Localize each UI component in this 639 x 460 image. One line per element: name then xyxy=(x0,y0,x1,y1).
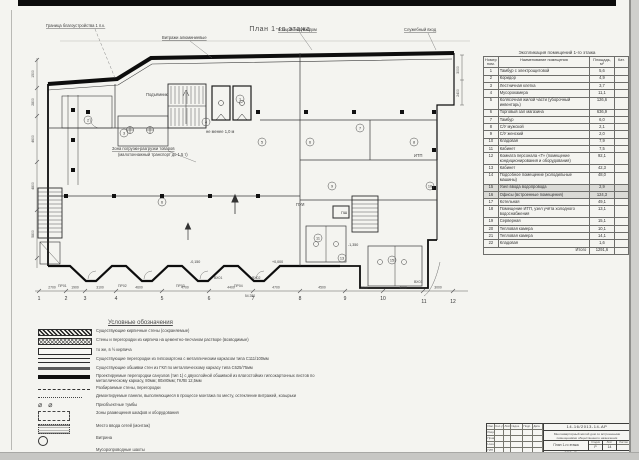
room-name-cell: Кабинет xyxy=(498,165,590,172)
stage-cell: Стадия Р xyxy=(588,441,602,450)
room-name-cell: Колясочная жилой части (уборочный инвент… xyxy=(498,97,590,109)
room-number-cell: 17 xyxy=(484,199,499,206)
room-number-cell: 16 xyxy=(484,191,499,198)
room-area-cell: 2,9 xyxy=(590,184,614,191)
dashdot-symbol xyxy=(38,397,82,398)
table-row: 19Серверная15,1 xyxy=(484,218,629,225)
elevator-shaft xyxy=(233,86,251,120)
room-name-cell: Подсобное помещение (холодильные машины) xyxy=(498,172,590,184)
room-category-cell xyxy=(614,145,628,152)
table-row: 9С/У женский2,0 xyxy=(484,131,629,138)
plan-label: ПУИ xyxy=(296,202,305,207)
title-block-signature-grid: Изм.Кол.учЛист№док.Подп.ДатаРазраб.Прове… xyxy=(487,424,544,454)
legend-symbol-cell xyxy=(38,436,96,446)
hatch-diag-symbol xyxy=(38,329,92,336)
dimension-label: 3800 xyxy=(360,286,368,290)
scan-bottom-edge xyxy=(0,452,639,460)
stair-treads xyxy=(171,108,199,126)
column xyxy=(256,194,260,198)
dimension-label: 4600 xyxy=(135,286,143,290)
room-mark-number: 11 xyxy=(316,236,320,240)
dimension-label: 2800 xyxy=(31,98,35,106)
room-number-cell: 14 xyxy=(484,172,499,184)
door-arc xyxy=(200,271,208,279)
legend-symbol-cell xyxy=(38,386,96,392)
room-name-cell: Комната персонала «Т» (помещение кондици… xyxy=(498,153,590,165)
plan-label: Подъёмник xyxy=(146,92,168,97)
room-category-cell xyxy=(614,97,628,109)
room-number-cell: 3 xyxy=(484,82,499,89)
room-number-cell: 19 xyxy=(484,218,499,225)
level-mark: -1,350 xyxy=(348,243,358,247)
room-number-cell: 20 xyxy=(484,225,499,232)
legend-item-text: то же, в ½ кирпича xyxy=(96,348,132,353)
room-category-cell xyxy=(614,153,628,165)
dimension-label: 1500 xyxy=(31,70,35,78)
room-area-cell: 11,1 xyxy=(590,90,614,97)
room-mark-number: 7 xyxy=(359,126,361,130)
room-name-cell: Офисы (встроенные помещения) xyxy=(498,191,590,198)
room-category-cell xyxy=(614,240,628,247)
room-number-cell: 18 xyxy=(484,206,499,218)
leaders xyxy=(95,29,440,296)
table-row: 15Узел ввода водопровода2,9 xyxy=(484,184,629,191)
room-number-cell: 4 xyxy=(484,90,499,97)
elevators xyxy=(212,86,251,120)
room-mark-number: 3 xyxy=(123,131,125,135)
room-name-cell: Тамбур xyxy=(498,116,590,123)
table-row: 10Кладовая7,9 xyxy=(484,138,629,145)
legend-symbol-cell: ⌀⌀ xyxy=(38,403,96,409)
legend-item-text: Существующие обшивки стен из ГКЛ по мета… xyxy=(96,366,253,371)
column xyxy=(352,110,356,114)
room-area-cell: 15,1 xyxy=(590,218,614,225)
axis-number: 4 xyxy=(115,296,118,302)
legend-item-text: Демонтируемые панели, выполняющиеся в пр… xyxy=(96,394,296,399)
column xyxy=(400,110,404,114)
dimension-label: 4500 xyxy=(318,286,326,290)
legend-item-text: Витрина xyxy=(96,436,112,441)
legend-symbol-cell xyxy=(38,338,96,345)
column xyxy=(432,148,436,152)
dimension-label: 3100 xyxy=(96,286,104,290)
dimension-label: 3000 xyxy=(434,286,442,290)
dimension-label: 4800 xyxy=(31,182,35,190)
sheet-number-value: 14 xyxy=(603,445,616,450)
table-row: 7Тамбур6,0 xyxy=(484,116,629,123)
project-line-2: помещениями общественного назначения xyxy=(544,436,630,440)
legend-item-text: Разбираемые стены, перегородки xyxy=(96,386,161,391)
room-category-cell xyxy=(614,116,628,123)
table-row: 13Кабинет42,3 xyxy=(484,165,629,172)
stair-diagonal xyxy=(40,242,60,264)
room-category-cell xyxy=(614,90,628,97)
axis-number: 11 xyxy=(421,299,426,305)
axis-number: 8 xyxy=(299,296,302,302)
legend-item: то же, в ½ кирпича xyxy=(38,348,338,355)
legend-item: Разбираемые стены, перегородки xyxy=(38,386,338,392)
room-mark-number: 6 xyxy=(309,140,311,144)
dimension-label: 2400 xyxy=(456,89,460,97)
scan-right-edge xyxy=(629,0,639,460)
table-row: 11Кабинет7,5 xyxy=(484,145,629,152)
table-row: 20Тепловая камера10,1 xyxy=(484,225,629,232)
room-name-cell: Котельная xyxy=(498,199,590,206)
room-mark-number: 2 xyxy=(87,118,89,122)
col-header-category: Кат. xyxy=(614,57,628,68)
plan-label: Козырёк над входом xyxy=(278,27,317,32)
sheets-total-cell: Листов xyxy=(616,441,630,450)
legend-symbol-cell xyxy=(38,366,96,372)
explication-grid: Номер пом. Наименование помещения Площад… xyxy=(483,56,629,255)
column xyxy=(71,168,75,172)
room-category-cell xyxy=(614,206,628,218)
column xyxy=(86,110,90,114)
legend-item: Проектируемые перегородки санузлов (тип … xyxy=(38,374,338,384)
entrance-code: ВХ02 xyxy=(252,276,260,280)
room-area-cell: 5,6 xyxy=(590,68,614,75)
room-number-cell: 8 xyxy=(484,124,499,131)
explication-table: Экспликация помещений 1-го этажа Номер п… xyxy=(483,50,631,255)
room-category-cell xyxy=(614,218,628,225)
table-row: 8С/У мужской2,1 xyxy=(484,124,629,131)
stair-treads xyxy=(171,86,203,104)
room-category-cell xyxy=(614,138,628,145)
dimension-labels-left: 15002800460048005800 xyxy=(31,70,35,238)
table-row: 14Подсобное помещение (холодильные машин… xyxy=(484,172,629,184)
room-area-cell: 636,9 xyxy=(590,109,614,116)
dimension-label: 4000 xyxy=(399,286,407,290)
room-area-cell: 4,9 xyxy=(590,75,614,82)
stair-right xyxy=(352,196,378,232)
drawing-sheet: План 1-го этажа 123456789101112 27001900… xyxy=(0,0,639,460)
plan-label: не менее 1,0 м xyxy=(206,129,235,134)
total-category-cell xyxy=(614,247,628,254)
legend-symbol-cell xyxy=(38,348,96,355)
room-name-cell: Лестничная клетка xyxy=(498,82,590,89)
stair-treads xyxy=(38,192,62,232)
room-category-cell xyxy=(614,68,628,75)
legend-item-text: Существующие кирпичные стены (сохраняемы… xyxy=(96,329,189,334)
entrance-code: ПР01 xyxy=(58,284,67,288)
legend-item-text: Существующие перегородки из гипсокартона… xyxy=(96,357,269,362)
north-arrows xyxy=(186,195,239,240)
room-area-cell: 10,1 xyxy=(590,225,614,232)
elevator-symbol xyxy=(219,101,224,106)
room-area-cell: 6,0 xyxy=(590,116,614,123)
plan-label: ИТП xyxy=(414,153,422,158)
room-number-cell: 7 xyxy=(484,116,499,123)
room-area-cell: 92,1 xyxy=(590,153,614,165)
axis-number: 6 xyxy=(208,296,211,302)
entrance-code: ВХ01 xyxy=(214,276,222,280)
table-row: 1Тамбур с электрощитовой5,6 xyxy=(484,68,629,75)
elevator-door-marks xyxy=(216,114,247,120)
circles-symbol: ⌀⌀ xyxy=(38,403,58,409)
room-area-cell: 49,1 xyxy=(590,199,614,206)
room-number-cell: 21 xyxy=(484,233,499,240)
total-dimension-label: 54 280 xyxy=(245,294,255,298)
wc-fixture xyxy=(334,242,339,247)
dash-rect-symbol xyxy=(38,411,70,421)
legend-item: Зоны размещения шкафов и оборудования xyxy=(38,411,338,421)
plan-label: Зона погрузки-разгрузки товаров xyxy=(112,146,175,151)
plan-label: (малотоннажный транспорт до 1,5 т) xyxy=(118,152,188,157)
legend-item: Существующие кирпичные стены (сохраняемы… xyxy=(38,329,338,336)
room-area-cell: 42,3 xyxy=(590,165,614,172)
room-category-cell xyxy=(614,82,628,89)
stair-treads xyxy=(352,200,378,228)
legend-title: Условные обозначения xyxy=(108,320,338,326)
room-number-cell: 10 xyxy=(484,138,499,145)
level-mark: -0,150 xyxy=(190,260,200,264)
room-number-cell: 9 xyxy=(484,131,499,138)
dimension-label: 5800 xyxy=(31,230,35,238)
door-arc xyxy=(90,118,100,128)
room-number-cell: 6 xyxy=(484,109,499,116)
room-mark-number: 15 xyxy=(390,258,394,262)
room-name-cell: Мусорокамера xyxy=(498,90,590,97)
flow-arrow-head xyxy=(186,224,191,230)
column xyxy=(208,194,212,198)
column xyxy=(71,138,75,142)
room-mark-number: 5 xyxy=(261,140,263,144)
legend-item-text: Стены и перегородки из кирпича на цемент… xyxy=(96,338,249,343)
level-mark: +0,000 xyxy=(272,260,283,264)
table-row: 17Котельная49,1 xyxy=(484,199,629,206)
room-category-cell xyxy=(614,75,628,82)
room-name-cell: Коридор xyxy=(498,75,590,82)
room-name-cell: Кабинет xyxy=(498,145,590,152)
legend-item-text: Проектируемые перегородки санузлов (тип … xyxy=(96,374,331,384)
table-row: 21Тепловая камера14,1 xyxy=(484,233,629,240)
table-header-row: Номер пом. Наименование помещения Площад… xyxy=(484,57,629,68)
room-name-cell: Кладовая xyxy=(498,138,590,145)
room-name-cell: Серверная xyxy=(498,218,590,225)
double-symbol xyxy=(38,358,90,363)
legend-item-text: Приобъектные тумбы xyxy=(96,403,137,408)
col-header-name: Наименование помещения xyxy=(498,57,590,68)
total-area-value: 1291,6 xyxy=(590,247,614,254)
wall-storefront-zigzag xyxy=(48,266,340,281)
table-row: 18Помещение ИТП, узел учёта холодного во… xyxy=(484,206,629,218)
level-marks: +0,000-0,150-1,350 xyxy=(190,243,358,264)
document-number: 14-16/2013-14-АР xyxy=(544,424,630,431)
room-number-cell: 1 xyxy=(484,68,499,75)
table-row: 16Офисы (встроенные помещения)124,3 xyxy=(484,191,629,198)
axis-number: 9 xyxy=(344,296,347,302)
room-name-cell: Тепловая камера xyxy=(498,233,590,240)
room-area-cell: 7,5 xyxy=(590,145,614,152)
wall-top-inner xyxy=(48,59,452,90)
dash-symbol xyxy=(38,389,90,390)
wc-fixture xyxy=(314,242,319,247)
room-category-cell xyxy=(614,124,628,131)
column xyxy=(64,194,68,198)
room-category-cell xyxy=(614,225,628,232)
plan-annotations: Граница благоустройства 1 п.к.Витражи ал… xyxy=(46,23,437,215)
column xyxy=(432,110,436,114)
wc-fixture xyxy=(378,260,383,265)
wall-lower-right xyxy=(340,240,437,288)
hatch-cross-symbol xyxy=(38,338,92,345)
room-category-cell xyxy=(614,233,628,240)
legend-symbol-cell xyxy=(38,329,96,336)
room-fixtures xyxy=(118,116,168,146)
room-mark-number: 6 xyxy=(161,200,163,204)
room-area-cell: 14,1 xyxy=(590,233,614,240)
table-row: 12Комната персонала «Т» (помещение конди… xyxy=(484,153,629,165)
column xyxy=(112,194,116,198)
room-name-cell: С/У женский xyxy=(498,131,590,138)
door-arcs xyxy=(88,118,264,279)
room-mark-number: 8 xyxy=(413,140,415,144)
table-row: 6Торговый зал магазина636,9 xyxy=(484,109,629,116)
legend-item: Место ввода сетей (монтаж) xyxy=(38,424,338,434)
table-row: 3Лестничная клетка3,7 xyxy=(484,82,629,89)
room-number-cell: 11 xyxy=(484,145,499,152)
dimension-label: 1900 xyxy=(71,286,79,290)
door-arc xyxy=(88,271,96,279)
stair-left xyxy=(38,188,62,238)
room-number-cell: 12 xyxy=(484,153,499,165)
room-area-cell: 2,0 xyxy=(590,131,614,138)
room-number-cell: 2 xyxy=(484,75,499,82)
table-row: 2Коридор4,9 xyxy=(484,75,629,82)
elevator-shaft xyxy=(212,86,230,120)
axis-number: 5 xyxy=(161,296,164,302)
plan-label: Служебный вход xyxy=(404,27,437,32)
room-name-cell: Тамбур с электрощитовой xyxy=(498,68,590,75)
room-name-cell: Тепловая камера xyxy=(498,225,590,232)
room-name-cell: С/У мужской xyxy=(498,124,590,131)
entrance-code: ВХ03 xyxy=(414,280,422,284)
thick-symbol xyxy=(38,367,90,370)
circle-symbol xyxy=(38,436,48,446)
legend-symbol-cell xyxy=(38,357,96,363)
title-block: Изм.Кол.учЛист№док.Подп.ДатаРазраб.Прове… xyxy=(486,423,631,455)
axis-number: 12 xyxy=(450,299,456,305)
dimension-labels-right: 30002400 xyxy=(456,66,460,97)
legend-item: Стены и перегородки из кирпича на цемент… xyxy=(38,338,338,345)
entrance-code: ПР04 xyxy=(234,284,243,288)
total-label: Итого xyxy=(484,247,590,254)
room-category-cell xyxy=(614,109,628,116)
room-number-cell: 13 xyxy=(484,165,499,172)
shaft-box-label: ПШ xyxy=(341,211,348,215)
room-number-cell: 15 xyxy=(484,184,499,191)
col-header-area: Площадь, м² xyxy=(590,57,614,68)
room-area-cell: 48,0 xyxy=(590,172,614,184)
axis-number: 2 xyxy=(65,296,68,302)
legend-symbol-cell xyxy=(38,374,96,380)
legend-item-text: Зоны размещения шкафов и оборудования xyxy=(96,411,179,416)
boundary-dashed-line xyxy=(95,29,115,78)
wall-right-upper xyxy=(437,53,454,160)
room-mark-number: 4 xyxy=(205,120,207,124)
thick-dark-symbol xyxy=(38,375,90,379)
axis-number: 1 xyxy=(38,296,41,302)
dimension-label: 2700 xyxy=(48,286,56,290)
table-row: 22Кладовая1,6 xyxy=(484,240,629,247)
dimension-label: 4600 xyxy=(31,135,35,143)
room-name-cell: Кладовая xyxy=(498,240,590,247)
axis-number: 10 xyxy=(380,296,386,302)
legend-item: Существующие перегородки из гипсокартона… xyxy=(38,357,338,363)
room-area-cell: 2,1 xyxy=(590,124,614,131)
legend-item: ⌀⌀Приобъектные тумбы xyxy=(38,403,338,409)
project-description: Многоквартирный жилой дом со встроенными… xyxy=(544,431,630,441)
dot-rect-symbol xyxy=(38,424,70,434)
legend-symbol-cell xyxy=(38,411,96,421)
legend-item: Витрина xyxy=(38,436,338,446)
bar-empty-symbol xyxy=(38,348,92,355)
column xyxy=(71,108,75,112)
legend-symbol-cell xyxy=(38,424,96,434)
room-area-cell: 124,3 xyxy=(590,191,614,198)
legend-item-text: Место ввода сетей (монтаж) xyxy=(96,424,150,429)
entrance-code: ПР02 xyxy=(118,284,127,288)
legend: Условные обозначения Существующие кирпич… xyxy=(38,320,338,457)
wc-fixture xyxy=(402,260,407,265)
column xyxy=(256,110,260,114)
room-mark-number: 1 xyxy=(239,97,241,101)
col-header-number: Номер пом. xyxy=(484,57,499,68)
legend-item: Существующие обшивки стен из ГКЛ по мета… xyxy=(38,366,338,372)
room-name-cell: Узел ввода водопровода xyxy=(498,184,590,191)
room-number-cell: 5 xyxy=(484,97,499,109)
room-category-cell xyxy=(614,172,628,184)
partitions xyxy=(48,53,437,286)
room-name-cell: Торговый зал магазина xyxy=(498,109,590,116)
room-area-cell: 13,1 xyxy=(590,206,614,218)
entrance-code: ПР03 xyxy=(176,284,185,288)
room-mark-number: 13 xyxy=(340,256,344,260)
room-category-cell xyxy=(614,165,628,172)
legend-item: Демонтируемые панели, выполняющиеся в пр… xyxy=(38,394,338,400)
room-area-cell: 7,9 xyxy=(590,138,614,145)
legend-symbol-cell xyxy=(38,394,96,400)
room-category-cell xyxy=(614,191,628,198)
table-row: 5Колясочная жилой части (уборочный инвен… xyxy=(484,97,629,109)
explication-title: Экспликация помещений 1-го этажа xyxy=(483,50,631,55)
plan-label: Граница благоустройства 1 п.к. xyxy=(46,23,105,28)
leader-line xyxy=(428,33,436,50)
sheet-number-cell: Лист 14 xyxy=(602,441,616,450)
room-area-cell: 3,7 xyxy=(590,82,614,89)
room-category-cell xyxy=(614,199,628,206)
table-total-row: Итого 1291,6 xyxy=(484,247,629,254)
room-category-cell xyxy=(614,184,628,191)
room-category-cell xyxy=(614,131,628,138)
door-arc xyxy=(144,271,152,279)
stage-value: Р xyxy=(589,445,602,450)
room-name-cell: Помещение ИТП, узел учёта холодного водо… xyxy=(498,206,590,218)
wall-top-facade xyxy=(48,53,454,84)
column xyxy=(160,194,164,198)
column xyxy=(304,110,308,114)
room-mark-number: 9 xyxy=(331,184,333,188)
sheet-name: План 1-го этажа xyxy=(544,441,588,450)
table-row: 4Мусорокамера11,1 xyxy=(484,90,629,97)
room-mark-number: 10 xyxy=(428,184,432,188)
plan-label: Витражи алюминиевые xyxy=(162,35,207,40)
room-area-cell: 1,6 xyxy=(590,240,614,247)
leader-line xyxy=(300,33,312,50)
room-number-cell: 22 xyxy=(484,240,499,247)
dimension-label: 3000 xyxy=(456,66,460,74)
room-area-cell: 126,6 xyxy=(590,97,614,109)
